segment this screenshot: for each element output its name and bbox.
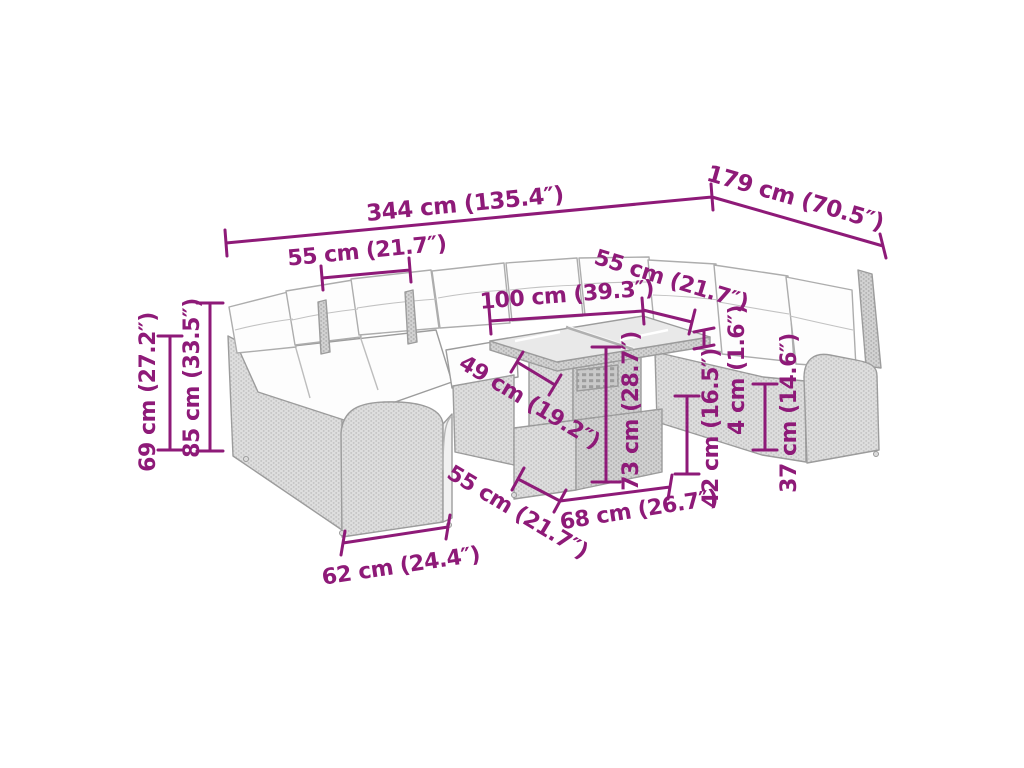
dim-label-back-height: 69 cm (27.2″) [136,312,161,472]
dim-line-back-height [158,336,182,450]
frame-post [858,270,881,368]
dim-label-overall-depth: 179 cm (70.5″) [704,161,887,236]
dim-label-total-height: 85 cm (33.5″) [180,298,205,458]
dim-label-armrest-length: 62 cm (24.4″) [320,542,482,590]
dim-label-table-base-width: 68 cm (26.7″) [558,486,720,536]
table-vent-grid [577,365,618,391]
dim-label-left-seat-width: 55 cm (21.7″) [286,231,447,271]
right-armrest [804,354,879,463]
dim-label-armrest-height: 37 cm (14.6″) [777,333,802,493]
dimension-diagram-page: 344 cm (135.4″) 179 cm (70.5″) 55 cm (21… [0,0,1024,768]
left-armrest [341,402,443,537]
cushion [229,292,296,353]
dim-label-tabletop-thickness: 4 cm (1.6″) [725,305,750,435]
dim-label-table-height: 73 cm (28.7″) [619,331,644,491]
dim-label-seat-height: 42 cm (16.5″) [699,348,724,508]
furniture-dimension-diagram: 344 cm (135.4″) 179 cm (70.5″) 55 cm (21… [0,0,1024,768]
